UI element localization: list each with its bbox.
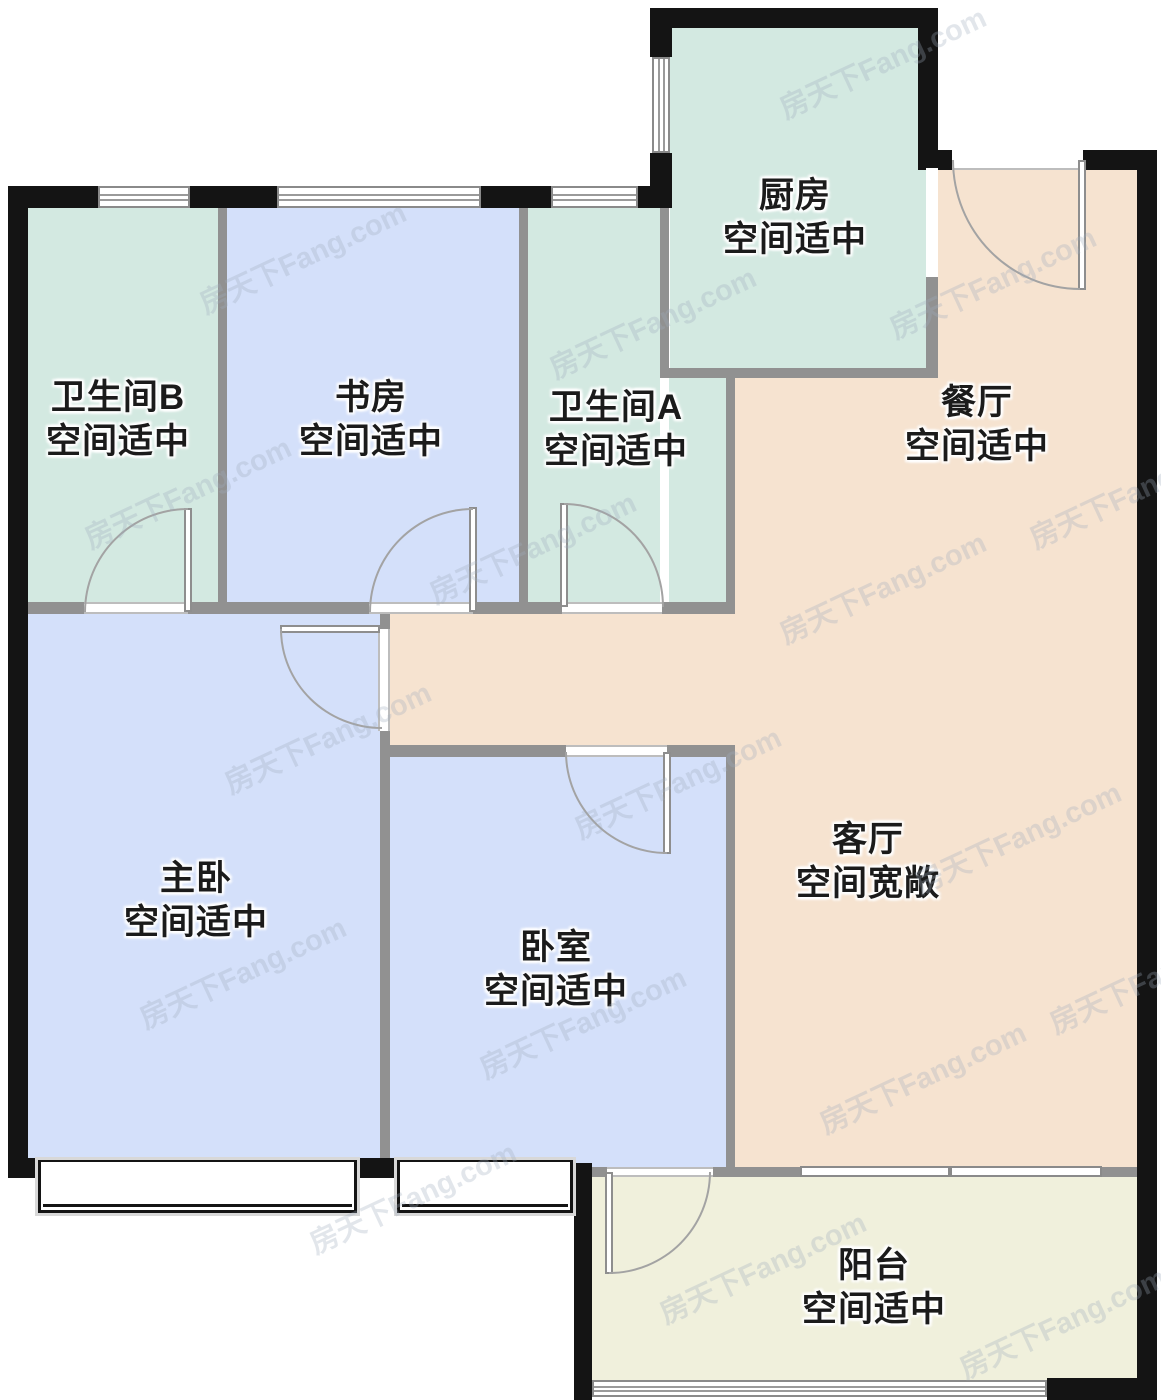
room-name: 厨房 [723, 174, 867, 218]
window [800, 1166, 950, 1177]
room-label-balcony: 阳台 空间适中 [802, 1244, 946, 1332]
wall-segment [188, 602, 369, 614]
window [277, 186, 481, 208]
room-note: 空间适中 [905, 425, 1049, 469]
room-note: 空间适中 [46, 420, 190, 464]
exterior-wall [8, 186, 28, 1178]
exterior-wall [8, 1158, 40, 1178]
room-name: 阳台 [802, 1244, 946, 1288]
room-name: 卫生间A [544, 386, 688, 430]
room-hallway [390, 612, 735, 747]
room-label-living: 客厅 空间宽敞 [796, 818, 940, 906]
bay-window [38, 1160, 357, 1213]
bay-window [397, 1160, 573, 1213]
room-note: 空间适中 [723, 218, 867, 262]
exterior-wall [1137, 150, 1157, 1400]
room-living [735, 378, 1137, 1167]
wall-segment [1102, 1167, 1137, 1177]
wall-segment [726, 378, 735, 612]
room-name: 卧室 [484, 926, 628, 970]
room-name: 主卧 [124, 857, 268, 901]
room-name: 书房 [299, 376, 443, 420]
exterior-wall [650, 8, 938, 28]
kitchen-doorway [926, 168, 938, 277]
exterior-wall [650, 153, 672, 208]
exterior-wall [574, 1163, 592, 1400]
wall-segment [218, 208, 227, 608]
exterior-wall [8, 186, 98, 208]
window [592, 1380, 1047, 1397]
wall-segment [662, 602, 735, 614]
wall-segment [726, 749, 735, 1167]
exterior-wall [918, 150, 952, 170]
room-note: 空间适中 [484, 970, 628, 1014]
window [98, 186, 190, 208]
exterior-wall [190, 186, 277, 208]
wall-segment [519, 208, 528, 608]
wall-segment [28, 602, 84, 614]
room-note: 空间适中 [802, 1288, 946, 1332]
window [551, 186, 638, 208]
wall-segment [380, 731, 390, 1160]
room-label-study: 书房 空间适中 [299, 376, 443, 464]
room-name: 卫生间B [46, 376, 190, 420]
room-label-bathroom-b: 卫生间B 空间适中 [46, 376, 190, 464]
wall-segment [380, 612, 390, 629]
room-note: 空间宽敞 [796, 862, 940, 906]
wall-segment [926, 277, 938, 368]
exterior-wall [918, 8, 938, 152]
wall-segment [473, 602, 562, 614]
room-label-bathroom-a: 卫生间A 空间适中 [544, 386, 688, 474]
wall-segment [660, 368, 938, 378]
room-note: 空间适中 [124, 901, 268, 945]
wall-segment [390, 745, 566, 757]
exterior-wall [1047, 1378, 1157, 1400]
room-note: 空间适中 [544, 430, 688, 474]
room-note: 空间适中 [299, 420, 443, 464]
window [652, 57, 670, 153]
room-name: 客厅 [796, 818, 940, 862]
room-label-kitchen: 厨房 空间适中 [723, 174, 867, 262]
window [950, 1166, 1102, 1177]
room-name: 餐厅 [905, 381, 1049, 425]
room-label-dining: 餐厅 空间适中 [905, 381, 1049, 469]
exterior-wall [355, 1158, 398, 1178]
exterior-wall [481, 186, 551, 208]
room-label-master-bedroom: 主卧 空间适中 [124, 857, 268, 945]
room-label-bedroom: 卧室 空间适中 [484, 926, 628, 1014]
wall-segment [660, 200, 669, 378]
wall-segment [713, 1167, 800, 1177]
wall-segment [667, 745, 735, 757]
floor-plan: 厨房 空间适中 卫生间B 空间适中 书房 空间适中 卫生间A 空间适中 餐厅 空… [0, 0, 1161, 1400]
